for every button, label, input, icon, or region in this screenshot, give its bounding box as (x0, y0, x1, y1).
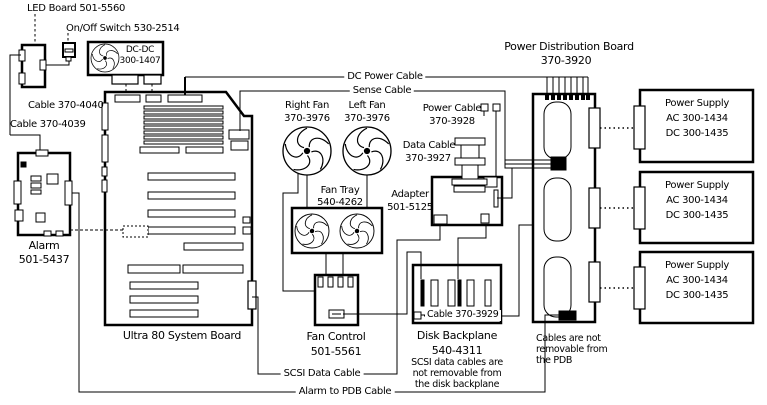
left-fan-icon (342, 127, 391, 175)
right-fan-icon (282, 127, 331, 175)
pdb-note-line: removable from (536, 345, 608, 356)
led-board-label: LED Board 501-5560 (27, 3, 125, 14)
fan-control-name: Fan Control (307, 331, 366, 342)
connector (243, 217, 250, 223)
slot (467, 280, 474, 306)
data-cable-ribbon (452, 138, 487, 192)
switch-stem (66, 57, 71, 61)
dcdc-name: DC-DC (126, 45, 154, 55)
led-board (19, 45, 46, 87)
fan-tray-part: 540-4262 (317, 197, 363, 208)
pdb-sense-connector (551, 157, 566, 170)
slot (144, 136, 223, 139)
connector (589, 108, 600, 148)
onoff-switch-label: On/Off Switch 530-2514 (66, 23, 179, 34)
slot (144, 126, 223, 129)
alarm-connector (123, 226, 148, 237)
connector (434, 215, 447, 224)
connector (414, 312, 421, 319)
cable-370-4039-label: Cable 370-4039 (10, 119, 86, 130)
fan-control (315, 275, 358, 325)
power-supply-dc: DC 300-1435 (666, 290, 729, 301)
power-supply-dc: DC 300-1435 (666, 210, 729, 221)
connector (15, 210, 23, 221)
connector (65, 181, 72, 205)
power-supply-dc: DC 300-1435 (666, 128, 729, 139)
power-supply-ac: AC 300-1434 (666, 195, 728, 206)
dcdc-part: 300-1407 (120, 56, 161, 66)
slot (458, 280, 461, 306)
connector (634, 187, 645, 229)
slot (130, 282, 198, 289)
system-board-label: Ultra 80 System Board (123, 330, 241, 341)
scsi-data-cable-label: SCSI Data Cable (281, 368, 364, 379)
chip (31, 176, 41, 181)
power-supply-name: Power Supply (665, 260, 729, 271)
slot (144, 111, 223, 114)
pdb-note-line: Cables are not (536, 334, 601, 345)
connector (146, 95, 161, 102)
right-fan-part: 370-3976 (284, 113, 330, 124)
sense-cable-label: Sense Cable (350, 85, 414, 96)
slot (144, 106, 223, 109)
chip (31, 183, 41, 188)
connector (589, 262, 600, 302)
slot (144, 131, 223, 134)
pin (575, 95, 579, 100)
connector (328, 277, 333, 287)
cable-370-3929-label: Cable 370-3929 (425, 310, 501, 321)
hardware-diagram: LED Board 501-5560 On/Off Switch 530-251… (0, 0, 767, 405)
power-supply-name: Power Supply (665, 180, 729, 191)
slot (485, 280, 491, 306)
pdb-busbar (544, 257, 571, 317)
connector (14, 181, 21, 204)
slot (431, 280, 438, 306)
pdb-name: Power Distribution Board (504, 41, 634, 52)
disk-backplane-name: Disk Backplane (417, 330, 497, 341)
slot (148, 210, 235, 217)
plug (493, 104, 500, 111)
chip (36, 213, 45, 222)
switch-band (65, 49, 73, 52)
right-fan-name: Right Fan (285, 100, 329, 111)
pin (545, 95, 549, 100)
slot (148, 227, 235, 234)
connector (102, 135, 108, 162)
connector (481, 214, 489, 223)
alarm-name: Alarm (29, 240, 60, 251)
power-supply-ac: AC 300-1434 (666, 275, 728, 286)
left-fan-name: Left Fan (349, 100, 386, 111)
connector (115, 95, 140, 102)
alarm-board (14, 150, 72, 236)
power-distribution-board (533, 94, 595, 322)
pdb-part: 370-3920 (541, 55, 592, 66)
alarm-part: 501-5437 (19, 254, 70, 265)
pin (557, 95, 561, 100)
power-supply-ac: AC 300-1434 (666, 113, 728, 124)
connector (338, 277, 343, 287)
slot (184, 243, 243, 250)
cable-370-4039-wire (10, 135, 40, 150)
diagram-drawing (0, 0, 767, 405)
data-cable-part: 370-3927 (405, 153, 451, 164)
pin (551, 95, 555, 100)
fan-control-part: 501-5561 (311, 346, 362, 357)
connector (44, 231, 51, 236)
slot (144, 116, 223, 119)
disk-backplane-part: 540-4311 (432, 345, 483, 356)
slot (183, 265, 243, 273)
slot (128, 265, 180, 273)
slot (140, 147, 179, 153)
power-cable-part: 370-3928 (429, 116, 475, 127)
switch-wire (46, 61, 69, 65)
connector (168, 95, 202, 102)
plug (481, 104, 488, 111)
connector (19, 73, 25, 84)
slot (448, 280, 455, 306)
connector (102, 167, 107, 176)
pin (563, 95, 567, 100)
slot (130, 296, 198, 303)
chip (31, 190, 41, 194)
slot (144, 141, 223, 144)
system-board (102, 92, 256, 325)
slot (186, 147, 223, 153)
adapter-name: Adapter (391, 189, 429, 200)
dc-power-cable-label: DC Power Cable (344, 71, 425, 82)
connector (243, 227, 251, 234)
connector (229, 130, 249, 139)
connector (112, 75, 138, 84)
connector (231, 141, 248, 150)
disk-backplane-note-line: not removable from (413, 369, 502, 380)
cable-370-4040-label: Cable 370-4040 (28, 100, 104, 111)
pdb-busbar (544, 178, 571, 241)
connector (348, 277, 353, 287)
data-cable-name: Data Cable (403, 140, 455, 151)
power-supply-input-connectors (634, 106, 645, 309)
chip (21, 162, 26, 167)
adapter-part: 501-5125 (387, 202, 433, 213)
disk-backplane-note-line: SCSI data cables are (411, 358, 503, 369)
connector (56, 231, 63, 236)
connector (318, 277, 323, 287)
connector (634, 267, 645, 309)
pin (569, 95, 573, 100)
pdb-output-connectors (589, 108, 600, 302)
connector (40, 60, 46, 70)
pin (581, 95, 585, 100)
pdb-alarm-connector (559, 311, 576, 320)
fan-tray-name: Fan Tray (321, 185, 360, 196)
connector (634, 106, 645, 149)
slot (421, 280, 424, 306)
connector (589, 188, 600, 228)
disk-backplane-note-line: the disk backplane (415, 380, 499, 391)
scsi-connector (248, 281, 256, 309)
pin (586, 95, 590, 100)
connector (144, 75, 161, 84)
pdb-note-line: the PDB (536, 356, 572, 367)
chip (47, 174, 58, 184)
power-supply-name: Power Supply (665, 98, 729, 109)
slot (148, 173, 235, 180)
pdb-busbar (544, 102, 571, 159)
slot (130, 310, 198, 317)
connector (102, 180, 107, 192)
connector (36, 150, 48, 156)
left-fan-part: 370-3976 (344, 113, 390, 124)
slot (148, 192, 235, 199)
power-cable-name: Power Cable (423, 103, 482, 114)
power-cable-plugs (481, 104, 500, 111)
onoff-switch (63, 43, 75, 61)
slot (144, 121, 223, 124)
alarm-to-pdb-cable-label: Alarm to PDB Cable (296, 386, 395, 397)
